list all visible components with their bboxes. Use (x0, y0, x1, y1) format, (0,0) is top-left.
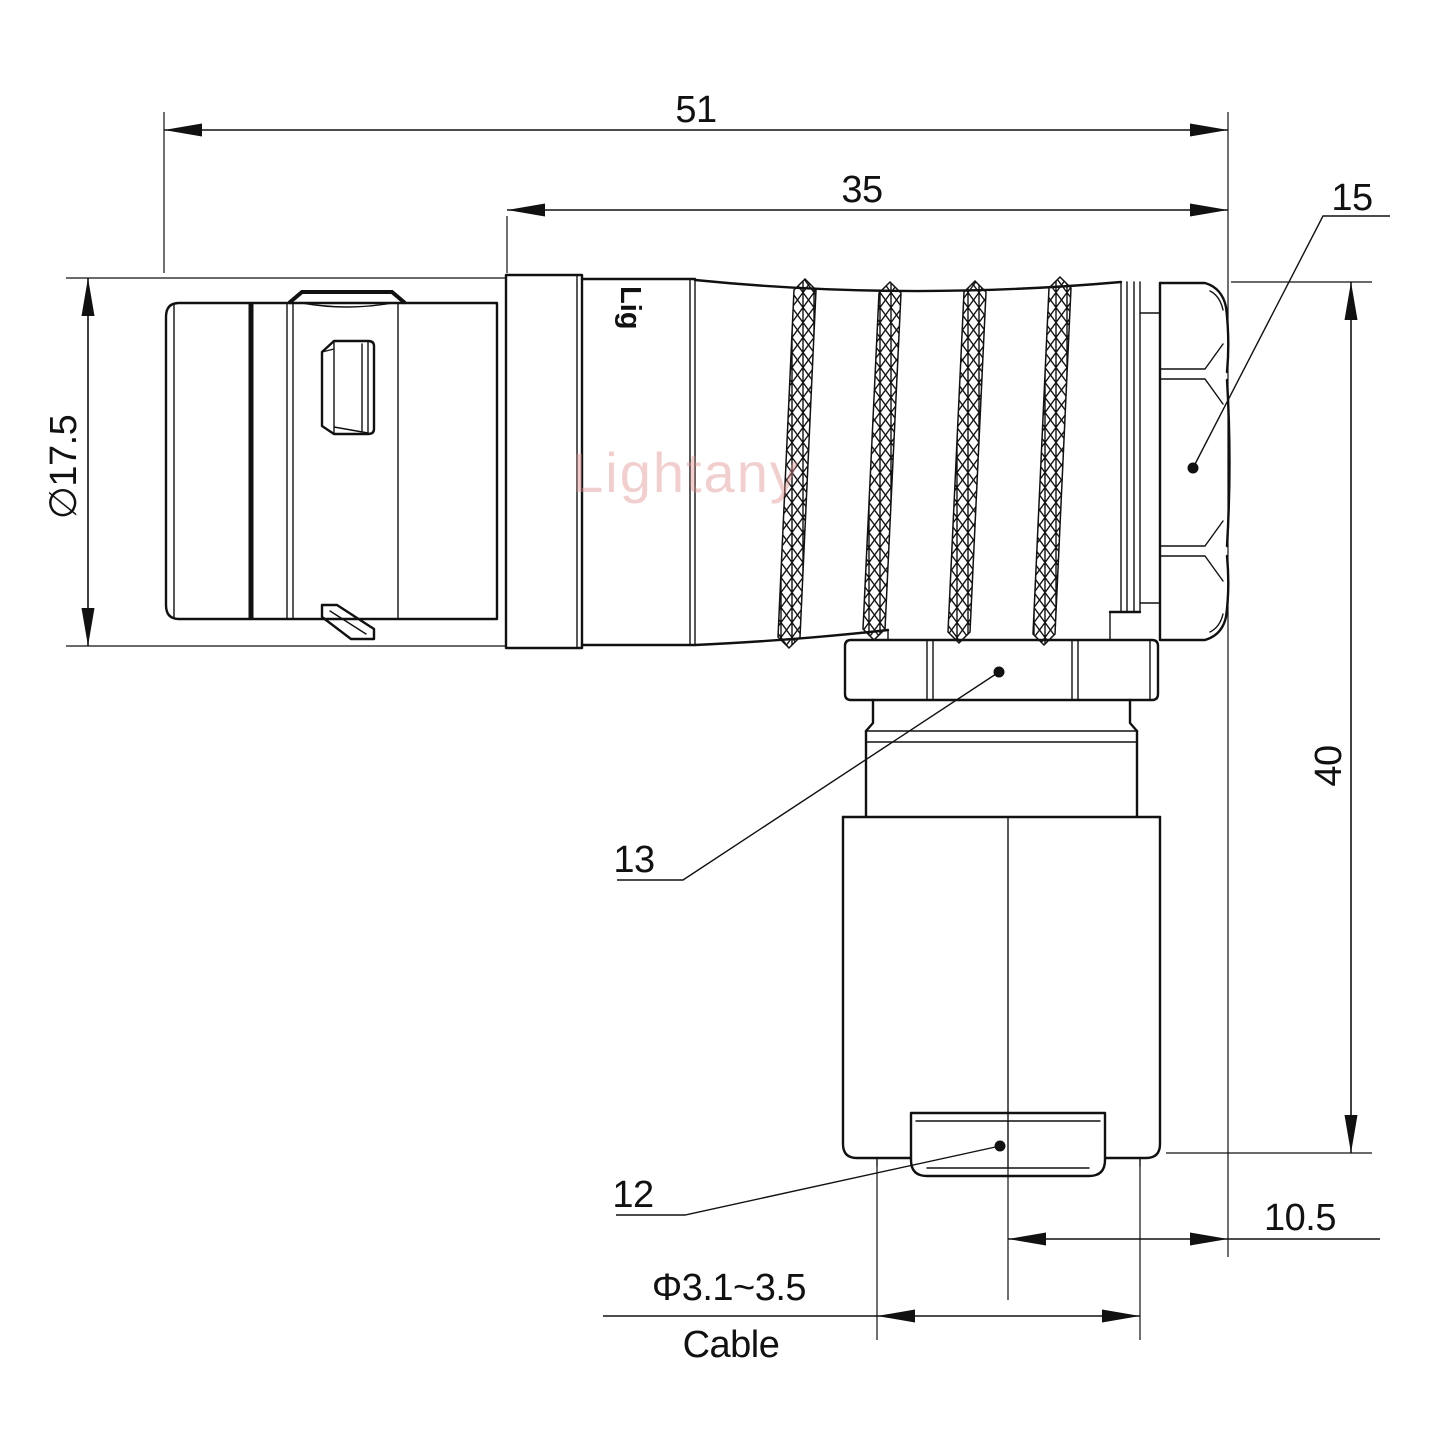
latch-window (322, 341, 374, 434)
dim-cable: Φ3.1~3.5 Cable (603, 1267, 1140, 1366)
top-tab (289, 292, 405, 303)
ref-15-label: 15 (1331, 177, 1372, 219)
dim-40-label: 40 (1308, 745, 1350, 786)
bottom-wedge (322, 605, 374, 639)
leader-dot (994, 667, 1005, 678)
dim-35-label: 35 (841, 169, 882, 211)
dim-17-5-label: ∅17.5 (43, 415, 85, 520)
technical-drawing-svg: Lig (0, 0, 1440, 1440)
rear-ring (1110, 282, 1160, 640)
dim-10-5-label: 10.5 (1264, 1197, 1336, 1239)
arrow-left-icon (877, 1310, 915, 1323)
arrow-right-icon (1190, 1233, 1228, 1246)
ref-13-label: 13 (613, 839, 654, 881)
dim-overall-length: 51 (164, 89, 1228, 137)
arrow-right-icon (1102, 1310, 1140, 1323)
strain-relief-barrel (843, 817, 1160, 1168)
cable-word-label: Cable (683, 1324, 780, 1366)
watermark-text: Lightany (572, 441, 800, 504)
leader-coupling-nut: 13 (613, 667, 1004, 882)
arrow-down-icon (82, 608, 95, 646)
arrow-left-icon (164, 124, 202, 137)
dim-51-label: 51 (675, 89, 716, 131)
knurl-bands (778, 277, 1071, 648)
neck (866, 700, 1137, 817)
extension-lines (66, 112, 1372, 1340)
arrow-up-icon (82, 278, 95, 316)
cable-diameter-label: Φ3.1~3.5 (652, 1267, 806, 1309)
leader-backnut: 15 (1188, 177, 1391, 474)
dim-axis-offset: 10.5 (1008, 1197, 1380, 1246)
arrow-left-icon (1008, 1233, 1046, 1246)
arrow-down-icon (1345, 1115, 1358, 1153)
hex-nut (1160, 283, 1230, 640)
leader-cap: 12 (612, 1141, 1005, 1217)
dim-front-diameter: ∅17.5 (43, 278, 95, 646)
leader-dot (1188, 463, 1199, 474)
front-sleeve (166, 292, 497, 639)
arrow-right-icon (1190, 204, 1228, 217)
arrow-left-icon (507, 204, 545, 217)
drawing-canvas: Lig (0, 0, 1440, 1440)
dim-grip-length: 35 (507, 169, 1228, 217)
annotation-layer: 51 35 ∅17.5 40 10.5 (43, 89, 1390, 1366)
connector-body: Lig (166, 275, 1230, 1176)
arrow-right-icon (1190, 124, 1228, 137)
dim-height: 40 (1308, 282, 1358, 1153)
ref-12-label: 12 (612, 1174, 653, 1216)
body-engraving: Lig (614, 286, 646, 330)
collar (506, 275, 582, 648)
leader-dot (995, 1141, 1006, 1152)
arrow-up-icon (1345, 282, 1358, 320)
